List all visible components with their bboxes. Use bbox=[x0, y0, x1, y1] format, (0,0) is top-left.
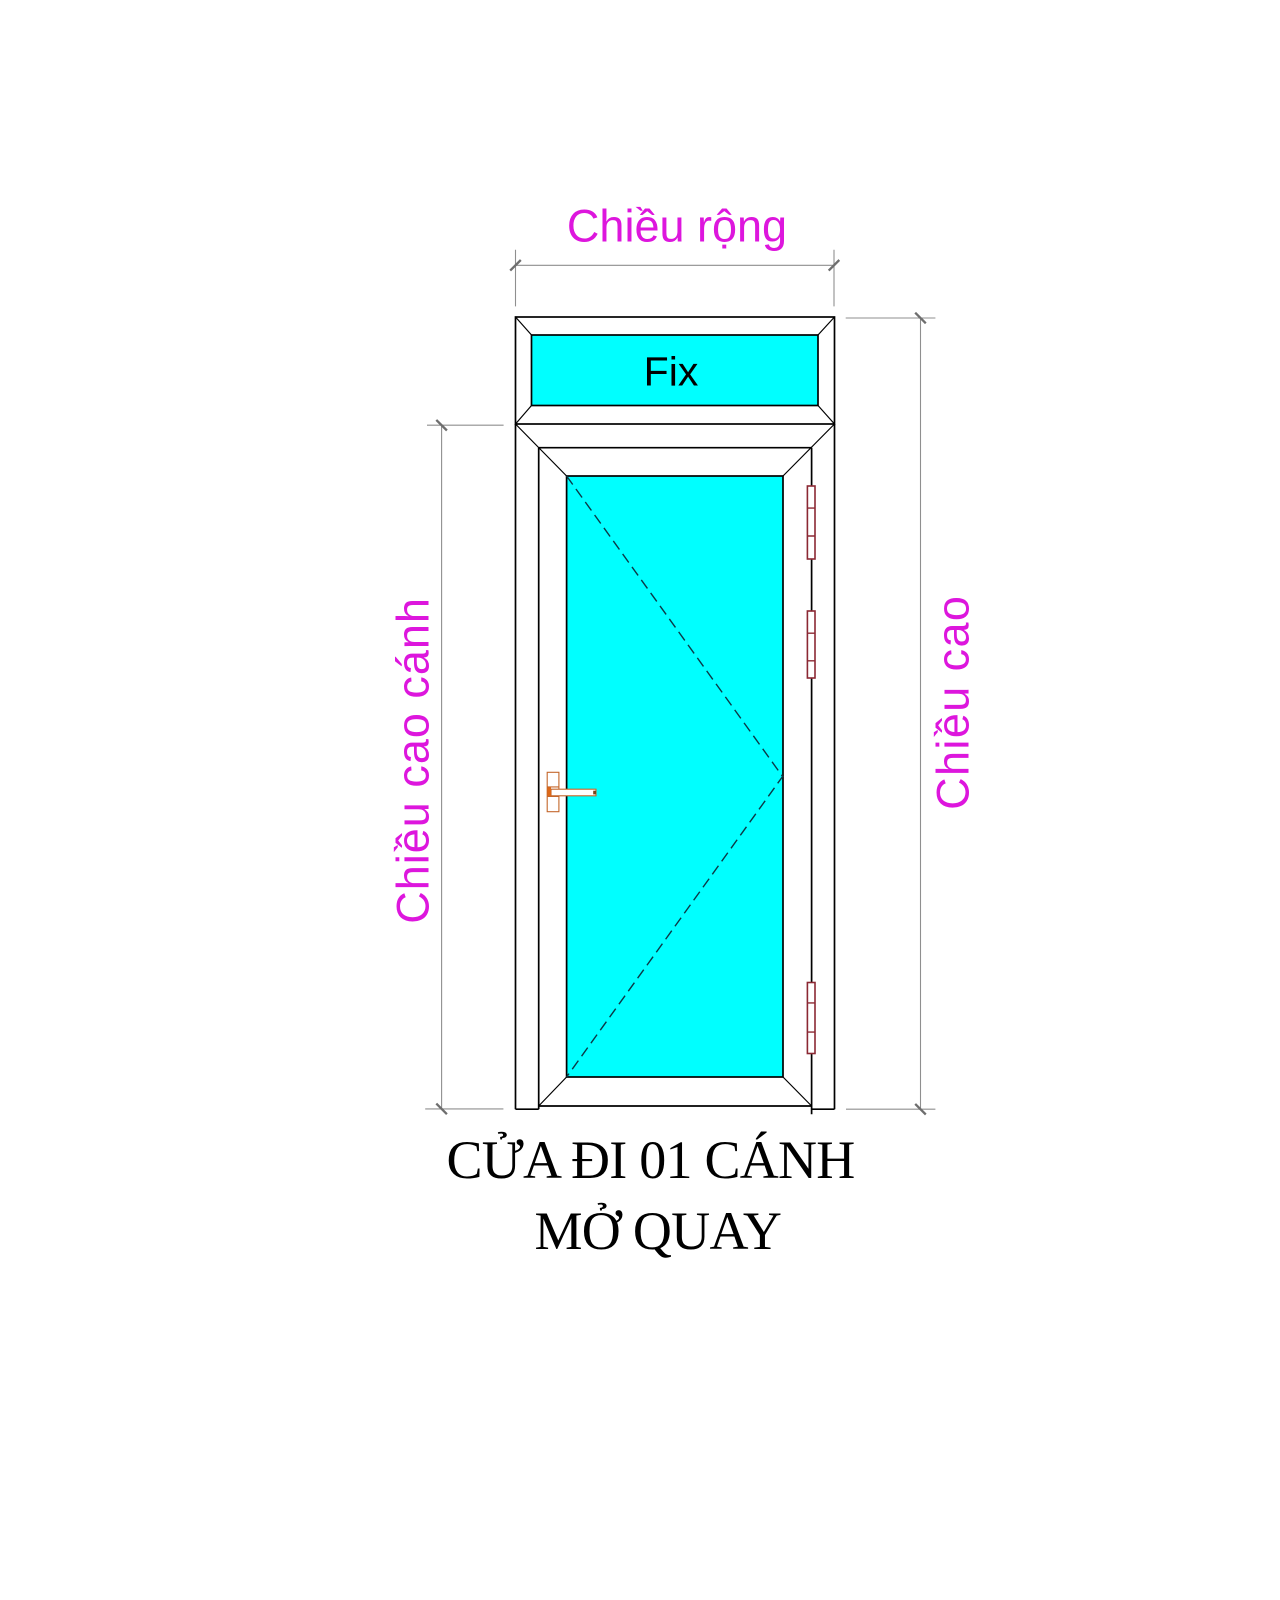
svg-text:CỬA ĐI 01 CÁNH: CỬA ĐI 01 CÁNH bbox=[447, 1130, 855, 1190]
svg-text:Fix: Fix bbox=[644, 349, 699, 395]
svg-text:Chiều cao: Chiều cao bbox=[928, 595, 979, 810]
svg-text:Chiều rộng: Chiều rộng bbox=[567, 201, 787, 252]
svg-text:Chiều cao cánh: Chiều cao cánh bbox=[388, 597, 439, 924]
svg-text:MỞ QUAY: MỞ QUAY bbox=[534, 1201, 781, 1261]
